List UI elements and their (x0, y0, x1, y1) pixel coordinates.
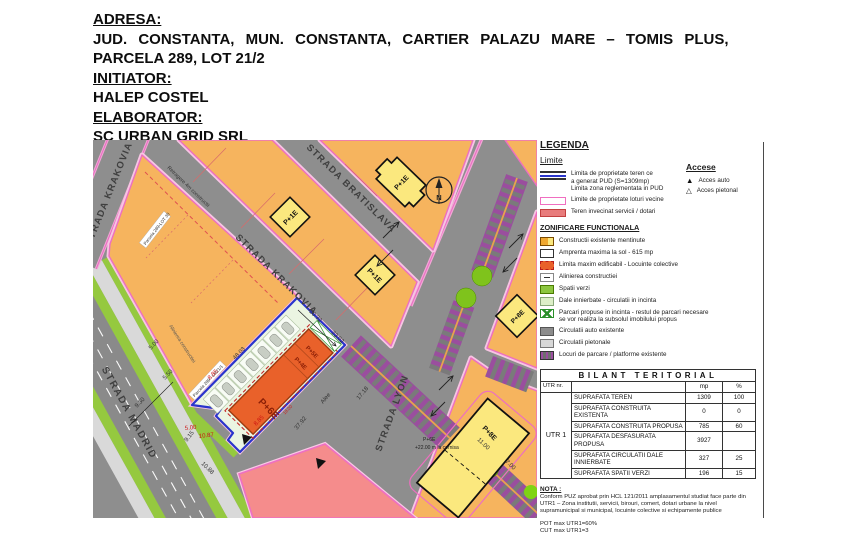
circulatii-auto-swatch (540, 327, 554, 336)
legend-row: Constructii existente mentinute (540, 237, 762, 246)
limite-item: Teren invecinat servicii / dotari (571, 208, 655, 216)
adresa-line1: JUD. CONSTANTA, MUN. CONSTANTA, CARTIER … (93, 30, 771, 50)
edificabil-swatch (540, 261, 554, 270)
acces-pietonal-row: △ Acces pietonal (686, 187, 756, 195)
legend-right-border (763, 142, 764, 518)
legend-row: Locuri de parcare / platforme existente (540, 351, 762, 360)
legend-row: Circulatii auto existente (540, 327, 762, 336)
legend-row: Spatii verzi (540, 285, 762, 294)
aliniere-swatch (540, 273, 554, 282)
limit-line-swatch (540, 171, 566, 180)
zonificare-title: ZONIFICARE FUNCTIONALA (540, 224, 762, 232)
zonificare-item: Dale innierbate - circulatii in incinta (559, 297, 656, 305)
zonificare-item: Parcari propuse in incinta - restul de p… (559, 309, 708, 317)
locuri-parcare-swatch (540, 351, 554, 360)
nota-block: NOTA : Conform PUZ aprobat prin HCL 121/… (540, 486, 758, 535)
zonificare-item: Circulatii auto existente (559, 327, 624, 335)
constructii-existente-swatch (540, 237, 554, 246)
zonificare-item: se vor realiza la subsolul imobilului pr… (559, 316, 708, 324)
table-row: UTR 1 SUPRAFATA TEREN 1309 100 (541, 392, 756, 403)
pot-max: POT max UTR1=60% (540, 521, 758, 528)
initiator-label: INITIATOR: (93, 69, 771, 89)
green-island (472, 266, 492, 286)
zonificare-item: Locuri de parcare / platforme existente (559, 351, 666, 359)
acces-auto-label: Acces auto (698, 177, 729, 185)
col-pct: % (723, 382, 756, 393)
zonificare-item: Amprenta maxima la sol - 615 mp (559, 249, 653, 257)
legend-row: Circulatii pietonale (540, 339, 762, 348)
table-row: SUPRAFATA DESFASURATA PROPUSA 3927 (541, 432, 756, 450)
acces-auto-row: ▲ Acces auto (686, 177, 756, 185)
table-row: SUPRAFATA CONSTRUITA EXISTENTA 0 0 (541, 403, 756, 421)
spatii-verzi-swatch (540, 285, 554, 294)
limite-item: a generat PUD (S=1309mp) (571, 178, 663, 186)
accese-block: Accese ▲ Acces auto △ Acces pietonal (686, 164, 756, 198)
limite-item: Limite de proprietate loturi vecine (571, 196, 664, 204)
bilant-teritorial-table: BILANT TERITORIAL UTR nr. mp % UTR 1 SUP… (540, 369, 756, 480)
zonificare-item: Limita maxim edificabil - Locuinte colec… (559, 261, 678, 269)
limite-item: Limita zona reglementata in PUD (571, 185, 663, 193)
circulatii-pietonale-swatch (540, 339, 554, 348)
neighbour-limit-swatch (540, 197, 566, 205)
legend-row: Limita maxim edificabil - Locuinte colec… (540, 261, 762, 270)
cut-max: CUT max UTR1=3 (540, 528, 758, 535)
initiator-name: HALEP COSTEL (93, 88, 771, 108)
accese-title: Accese (686, 164, 756, 172)
zonificare-item: Spatii verzi (559, 285, 590, 293)
zonificare-item: Constructii existente mentinute (559, 237, 645, 245)
amprenta-swatch (540, 249, 554, 258)
legend-panel: LEGENDA Limite Limita de proprietate ter… (540, 142, 762, 535)
limite-item: Limita de proprietate teren ce (571, 170, 663, 178)
p8e-note-2: +22.00 m la cornisa (415, 445, 459, 451)
table-row: SUPRAFATA CIRCULATII DALE INNIERBATE 327… (541, 450, 756, 468)
green-island (456, 288, 476, 308)
teren-invecinat-swatch (540, 209, 566, 217)
zonificare-item: Circulatii pietonale (559, 339, 610, 347)
col-mp: mp (686, 382, 723, 393)
bilant-title: BILANT TERITORIAL (541, 369, 756, 382)
nota-title: NOTA : (540, 486, 758, 493)
parcari-propuse-swatch (540, 309, 554, 318)
legend-title: LEGENDA (540, 142, 762, 150)
table-row: SUPRAFATA CONSTRUITA PROPUSA 785 60 (541, 421, 756, 432)
adresa-line2: PARCELA 289, LOT 21/2 (93, 49, 771, 69)
legend-row: Alinierea constructiei (540, 273, 762, 282)
site-plan-map: STRADA MADRID (93, 140, 537, 518)
table-row: SUPRAFATA SPATII VERZI 196 15 (541, 468, 756, 479)
dale-innierbate-swatch (540, 297, 554, 306)
acces-pietonal-label: Acces pietonal (697, 187, 738, 195)
nota-body: Conform PUZ aprobat prin HCL 121/2011 am… (540, 494, 758, 515)
document-header: ADRESA: JUD. CONSTANTA, MUN. CONSTANTA, … (93, 10, 771, 147)
legend-row: Dale innierbate - circulatii in incinta (540, 297, 762, 306)
acces-auto-icon: ▲ (686, 177, 693, 185)
north-letter: N (436, 193, 441, 202)
legend-row: Parcari propuse in incinta - restul de p… (540, 309, 762, 324)
site-plan-svg: STRADA MADRID (93, 140, 537, 518)
legend-row: Amprenta maxima la sol - 615 mp (540, 249, 762, 258)
p8e-note-1: P+6E (423, 437, 436, 443)
legend-row-teren-invecinat: Teren invecinat servicii / dotari (540, 208, 762, 217)
acces-pietonal-icon: △ (686, 187, 692, 195)
zonificare-item: Alinierea constructiei (559, 273, 617, 281)
col-utr: UTR nr. (541, 382, 572, 393)
adresa-label: ADRESA: (93, 10, 771, 30)
elaborator-label: ELABORATOR: (93, 108, 771, 128)
utr-cell: UTR 1 (541, 392, 572, 478)
